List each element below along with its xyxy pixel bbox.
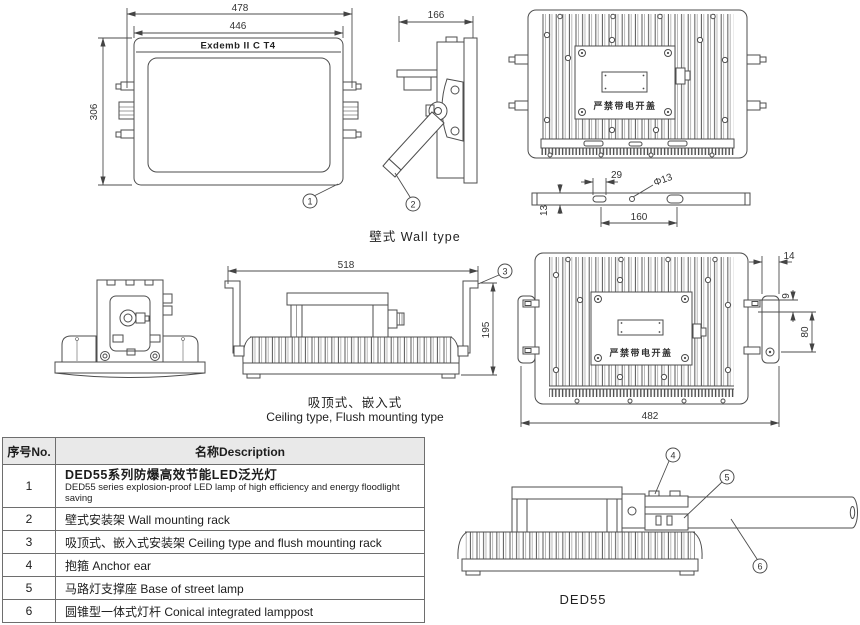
table-row: 3 吸顶式、嵌入式安装架 Ceiling type and flush moun… <box>3 531 425 554</box>
svg-text:1: 1 <box>307 196 312 206</box>
svg-text:5: 5 <box>724 472 729 482</box>
row-description: 圆锥型一体式灯杆 Conical integrated lamppost <box>56 600 425 623</box>
row-description: 壁式安装架 Wall mounting rack <box>56 508 425 531</box>
row-no: 5 <box>3 577 56 600</box>
row-no: 3 <box>3 531 56 554</box>
svg-text:6: 6 <box>757 561 762 571</box>
ceiling-view: 518 195 3 吸顶式、嵌入式 Ceiling type, Flush mo… <box>225 260 512 424</box>
back-view-top: 严禁带电开盖 <box>509 10 766 158</box>
callout-3: 3 <box>478 264 512 284</box>
dim-13: 13 <box>539 204 550 216</box>
back-view-bracket: 严禁带电开盖 14 9 80 482 <box>518 251 816 427</box>
callout-1: 1 <box>303 184 338 208</box>
dim-160: 160 <box>631 212 648 223</box>
dim-166: 166 <box>428 10 445 21</box>
row-no: 1 <box>3 465 56 508</box>
dim-195: 195 <box>481 321 492 338</box>
callout-6: 6 <box>731 519 767 573</box>
technical-drawing-page: 478 446 306 Exdemb II C T4 1 166 2 壁式 Wa… <box>0 0 860 625</box>
callout-2: 2 <box>395 173 420 211</box>
dim-80: 80 <box>800 326 811 338</box>
dim-518: 518 <box>338 260 355 271</box>
row-description: DED55系列防爆高效节能LED泛光灯 DED55 series explosi… <box>56 465 425 508</box>
dim-306: 306 <box>89 103 100 120</box>
row-no: 4 <box>3 554 56 577</box>
row-no: 2 <box>3 508 56 531</box>
wall-type-caption: 壁式 Wall type <box>369 229 460 244</box>
table-header-row: 序号No. 名称Description <box>3 438 425 465</box>
table-row: 5 马路灯支撑座 Base of street lamp <box>3 577 425 600</box>
dim-478: 478 <box>232 3 249 14</box>
mounting-bar: 29 Φ13 13 160 <box>532 170 750 227</box>
callout-4: 4 <box>655 448 680 494</box>
description-en: DED55 series explosion-proof LED lamp of… <box>65 483 424 504</box>
dim-29: 29 <box>611 170 623 181</box>
description-cn: DED55系列防爆高效节能LED泛光灯 <box>65 468 424 484</box>
row-no: 6 <box>3 600 56 623</box>
parts-table: 序号No. 名称Description 1 DED55系列防爆高效节能LED泛光… <box>2 437 425 623</box>
ex-marking: Exdemb II C T4 <box>200 41 275 52</box>
svg-text:4: 4 <box>670 450 675 460</box>
row-description: 马路灯支撑座 Base of street lamp <box>56 577 425 600</box>
svg-text:2: 2 <box>410 199 415 209</box>
table-row: 6 圆锥型一体式灯杆 Conical integrated lamppost <box>3 600 425 623</box>
row-description: 吸顶式、嵌入式安装架 Ceiling type and flush mounti… <box>56 531 425 554</box>
dim-482: 482 <box>642 411 659 422</box>
front-view: 478 446 306 Exdemb II C T4 1 <box>89 3 361 208</box>
warning-label: 严禁带电开盖 <box>608 347 672 358</box>
svg-text:3: 3 <box>502 266 507 276</box>
anchor-ear <box>645 496 688 507</box>
warning-label: 严禁带电开盖 <box>592 100 656 111</box>
end-view <box>55 280 205 378</box>
row-description: 抱箍 Anchor ear <box>56 554 425 577</box>
dim-hole-13: Φ13 <box>652 172 674 189</box>
ceiling-caption-cn: 吸顶式、嵌入式 <box>308 396 403 410</box>
wall-side-view: 166 2 壁式 Wall type <box>369 10 477 244</box>
dim-9: 9 <box>781 293 792 299</box>
street-lamp-view: 4 5 6 DED55 <box>458 448 858 607</box>
header-no: 序号No. <box>3 438 56 465</box>
table-row: 4 抱箍 Anchor ear <box>3 554 425 577</box>
callout-5: 5 <box>684 470 734 518</box>
header-description: 名称Description <box>56 438 425 465</box>
table-row: 1 DED55系列防爆高效节能LED泛光灯 DED55 series explo… <box>3 465 425 508</box>
dim-14: 14 <box>783 251 795 262</box>
dim-446: 446 <box>230 21 247 32</box>
table-row: 2 壁式安装架 Wall mounting rack <box>3 508 425 531</box>
ceiling-caption-en: Ceiling type, Flush mounting type <box>266 410 444 424</box>
model-label: DED55 <box>560 592 607 607</box>
